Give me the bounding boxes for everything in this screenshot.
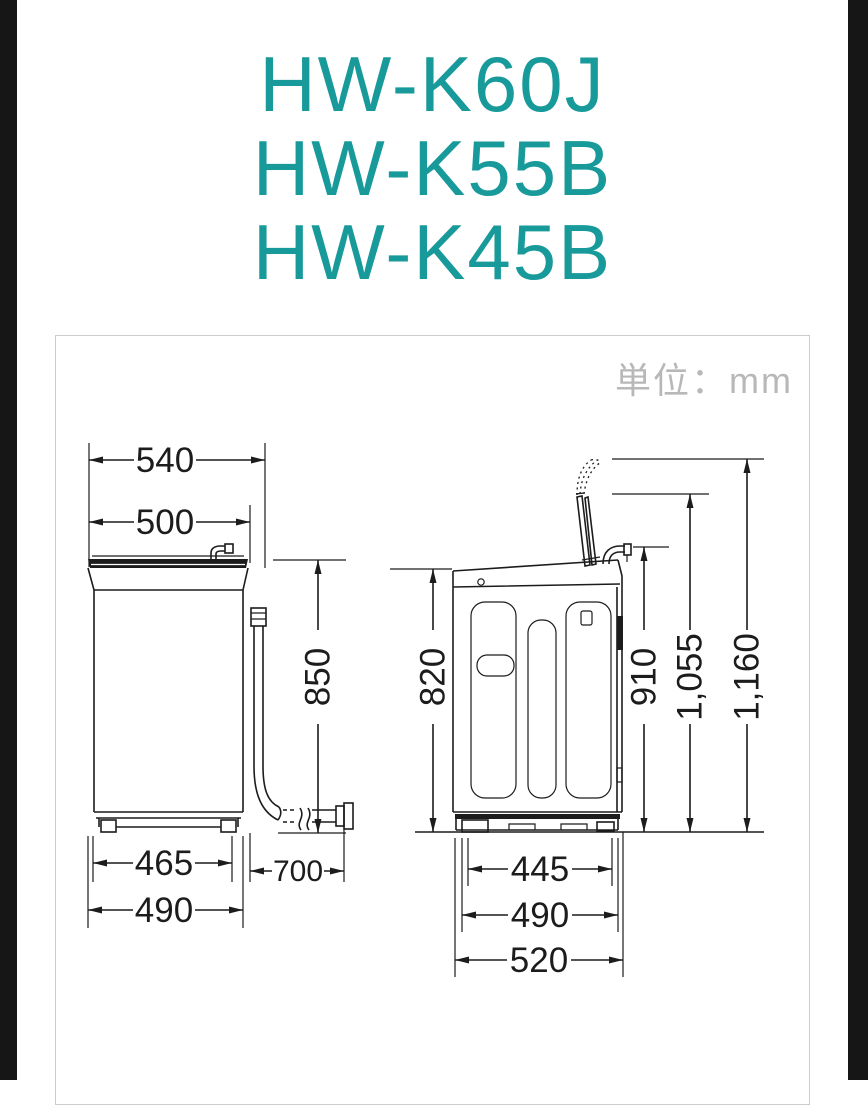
dim-front-feet-width: 465: [135, 844, 193, 883]
dim-front-lid-width: 500: [136, 503, 194, 542]
dim-side-base-depth: 490: [511, 896, 569, 935]
dim-side-feet-depth: 445: [511, 850, 569, 889]
dim-side-overall-depth: 520: [510, 941, 568, 980]
dim-side-lid-open-height: 1,055: [671, 633, 710, 721]
dim-side-lid-max-height: 1,160: [728, 633, 767, 721]
dim-front-base-width: 490: [135, 891, 193, 930]
dim-front-hose-length: 700: [273, 855, 323, 888]
dim-side-body-height: 820: [414, 648, 453, 706]
front-view-drawing: 540 500: [88, 441, 353, 930]
side-view-drawing: 820: [390, 459, 767, 980]
dimension-drawing: 540 500: [0, 0, 868, 1080]
dim-front-height: 850: [299, 648, 338, 706]
dim-side-hook-height: 910: [625, 648, 664, 706]
dim-front-overall-width: 540: [136, 441, 194, 480]
